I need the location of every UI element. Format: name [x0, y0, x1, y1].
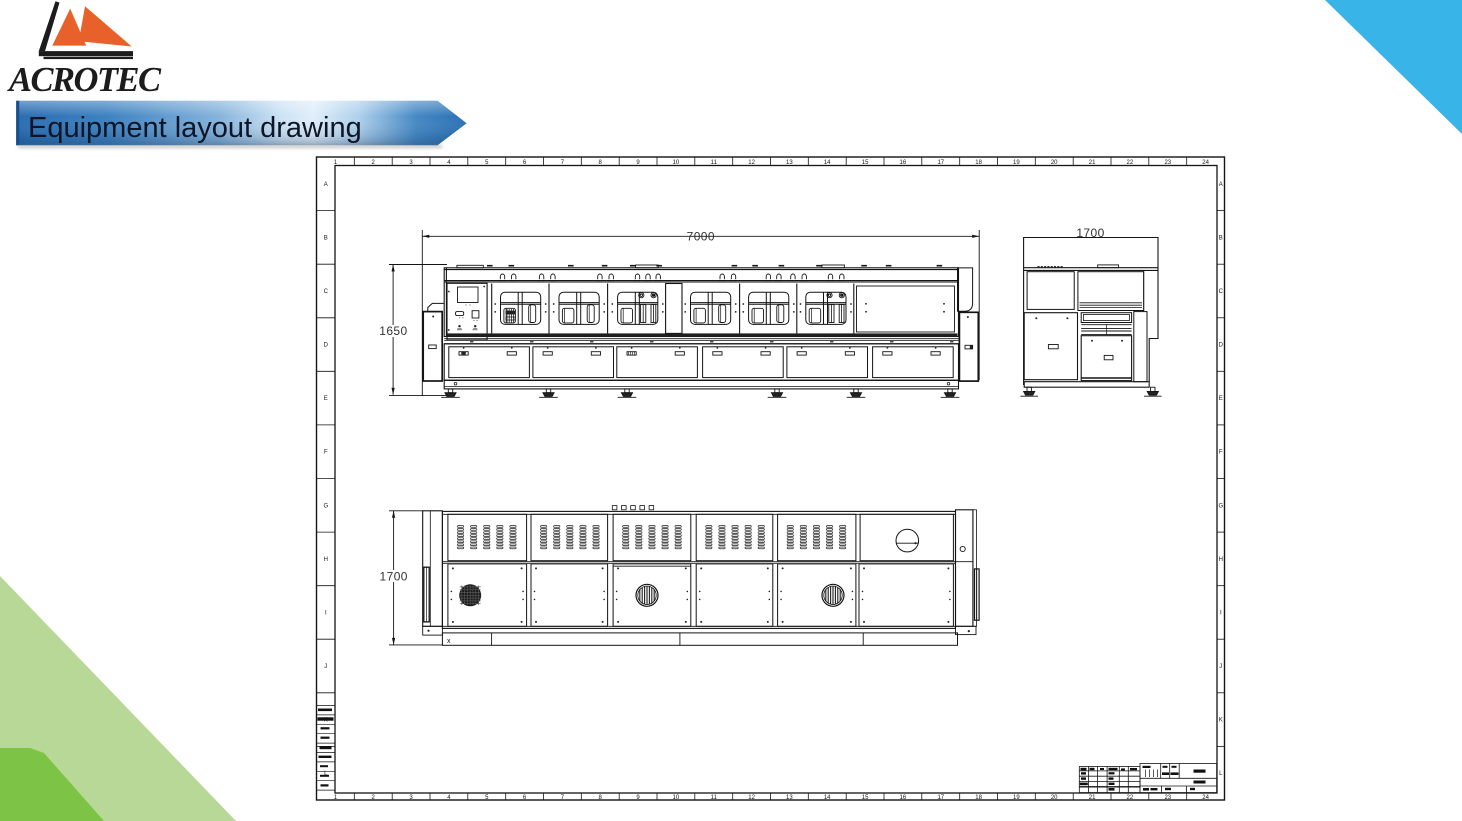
svg-text:H: H	[1219, 557, 1223, 563]
svg-text:24: 24	[1202, 160, 1209, 166]
svg-text:G: G	[1218, 503, 1223, 509]
svg-text:B: B	[324, 235, 328, 241]
svg-text:21: 21	[1089, 795, 1096, 801]
svg-text:19: 19	[1013, 160, 1020, 166]
svg-text:23: 23	[1164, 160, 1171, 166]
svg-text:18: 18	[975, 160, 982, 166]
svg-text:20: 20	[1051, 160, 1058, 166]
svg-text:L: L	[1219, 771, 1223, 777]
svg-text:10: 10	[673, 160, 680, 166]
svg-text:24: 24	[1202, 795, 1209, 801]
svg-text:17: 17	[937, 160, 944, 166]
svg-text:21: 21	[1089, 160, 1096, 166]
svg-text:14: 14	[824, 160, 831, 166]
svg-text:I: I	[325, 611, 327, 617]
svg-text:A: A	[1219, 182, 1223, 188]
svg-text:16: 16	[900, 795, 907, 801]
svg-text:D: D	[324, 343, 329, 349]
svg-text:I: I	[1220, 611, 1222, 617]
svg-text:12: 12	[748, 795, 755, 801]
svg-text:G: G	[323, 503, 328, 509]
svg-text:K: K	[1219, 718, 1223, 724]
svg-text:E: E	[324, 396, 328, 402]
svg-text:14: 14	[824, 795, 831, 801]
svg-text:1650: 1650	[379, 324, 407, 338]
svg-text:B: B	[1219, 235, 1223, 241]
svg-text:11: 11	[711, 160, 718, 166]
svg-text:10: 10	[673, 795, 680, 801]
svg-text:A: A	[324, 182, 328, 188]
svg-text:20: 20	[1051, 795, 1058, 801]
svg-text:13: 13	[786, 160, 793, 166]
svg-text:C: C	[324, 289, 329, 295]
svg-text:13: 13	[786, 795, 793, 801]
svg-text:11: 11	[711, 795, 718, 801]
svg-text:J: J	[324, 664, 327, 670]
svg-text:C: C	[1219, 289, 1224, 295]
svg-text:12: 12	[748, 160, 755, 166]
svg-text:16: 16	[900, 160, 907, 166]
svg-text:1700: 1700	[380, 570, 408, 584]
svg-text:22: 22	[1127, 795, 1134, 801]
svg-text:15: 15	[862, 795, 869, 801]
svg-text:F: F	[1219, 450, 1223, 456]
svg-text:19: 19	[1013, 795, 1020, 801]
svg-text:22: 22	[1127, 160, 1134, 166]
svg-text:F: F	[324, 450, 328, 456]
svg-text:23: 23	[1164, 795, 1171, 801]
svg-text:x: x	[447, 638, 451, 645]
svg-text:J: J	[1219, 664, 1222, 670]
svg-text:E: E	[1219, 396, 1223, 402]
svg-text:D: D	[1219, 343, 1224, 349]
svg-text:H: H	[324, 557, 328, 563]
svg-text:17: 17	[937, 795, 944, 801]
svg-text:18: 18	[975, 795, 982, 801]
svg-text:7000: 7000	[687, 229, 715, 243]
svg-text:15: 15	[862, 160, 869, 166]
